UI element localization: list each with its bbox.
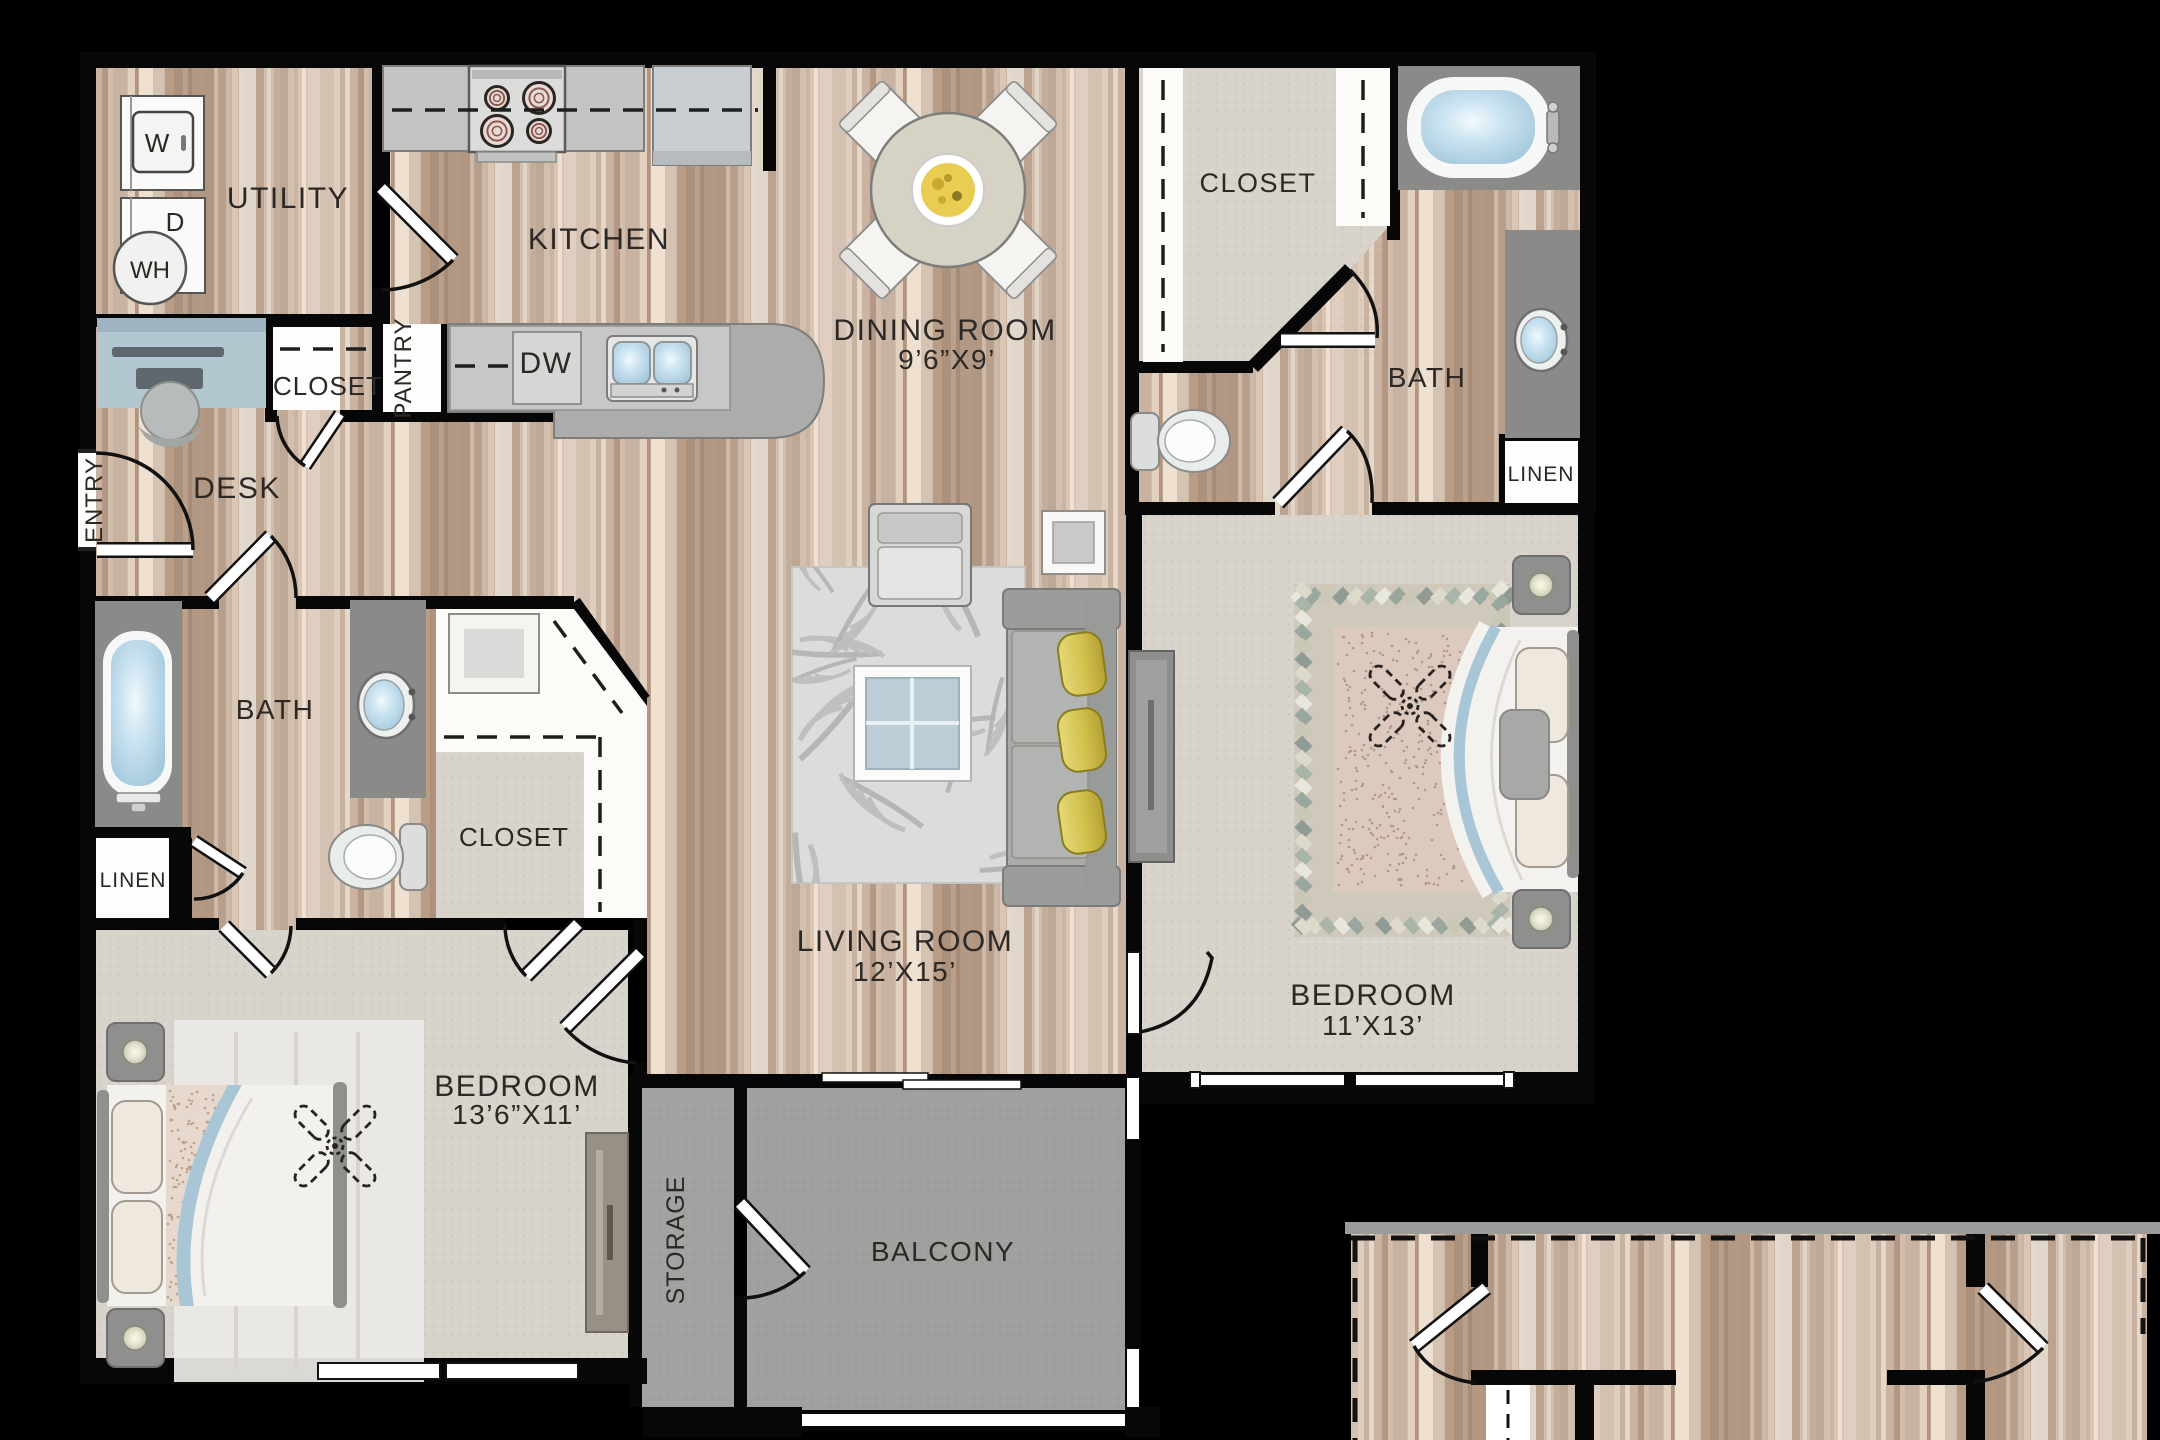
svg-text:CLOSET: CLOSET — [459, 822, 569, 852]
svg-text:BATH: BATH — [1388, 362, 1467, 393]
svg-text:D: D — [166, 207, 185, 237]
svg-text:11’X13’: 11’X13’ — [1322, 1010, 1424, 1041]
svg-text:LINEN: LINEN — [100, 869, 167, 892]
svg-text:13’6”X11’: 13’6”X11’ — [452, 1099, 582, 1130]
svg-text:UTILITY: UTILITY — [227, 182, 349, 215]
svg-text:BALCONY: BALCONY — [871, 1236, 1015, 1267]
svg-text:PANTRY: PANTRY — [390, 317, 417, 418]
svg-text:DESK: DESK — [193, 472, 281, 505]
svg-text:BEDROOM: BEDROOM — [1290, 979, 1456, 1012]
svg-text:BATH: BATH — [236, 694, 315, 725]
svg-text:DW: DW — [520, 347, 573, 380]
svg-text:ENTRY: ENTRY — [81, 457, 108, 543]
svg-text:WH: WH — [130, 257, 170, 284]
svg-text:9’6”X9’: 9’6”X9’ — [898, 344, 996, 375]
svg-text:W: W — [145, 128, 170, 158]
svg-text:LIVING ROOM: LIVING ROOM — [797, 925, 1014, 958]
svg-text:KITCHEN: KITCHEN — [528, 223, 670, 256]
svg-text:DINING ROOM: DINING ROOM — [833, 314, 1056, 347]
svg-text:CLOSET: CLOSET — [273, 371, 383, 401]
svg-text:STORAGE: STORAGE — [662, 1176, 690, 1305]
svg-text:CLOSET: CLOSET — [1199, 168, 1316, 198]
svg-text:12’X15’: 12’X15’ — [853, 956, 957, 987]
svg-text:LINEN: LINEN — [1508, 463, 1575, 486]
